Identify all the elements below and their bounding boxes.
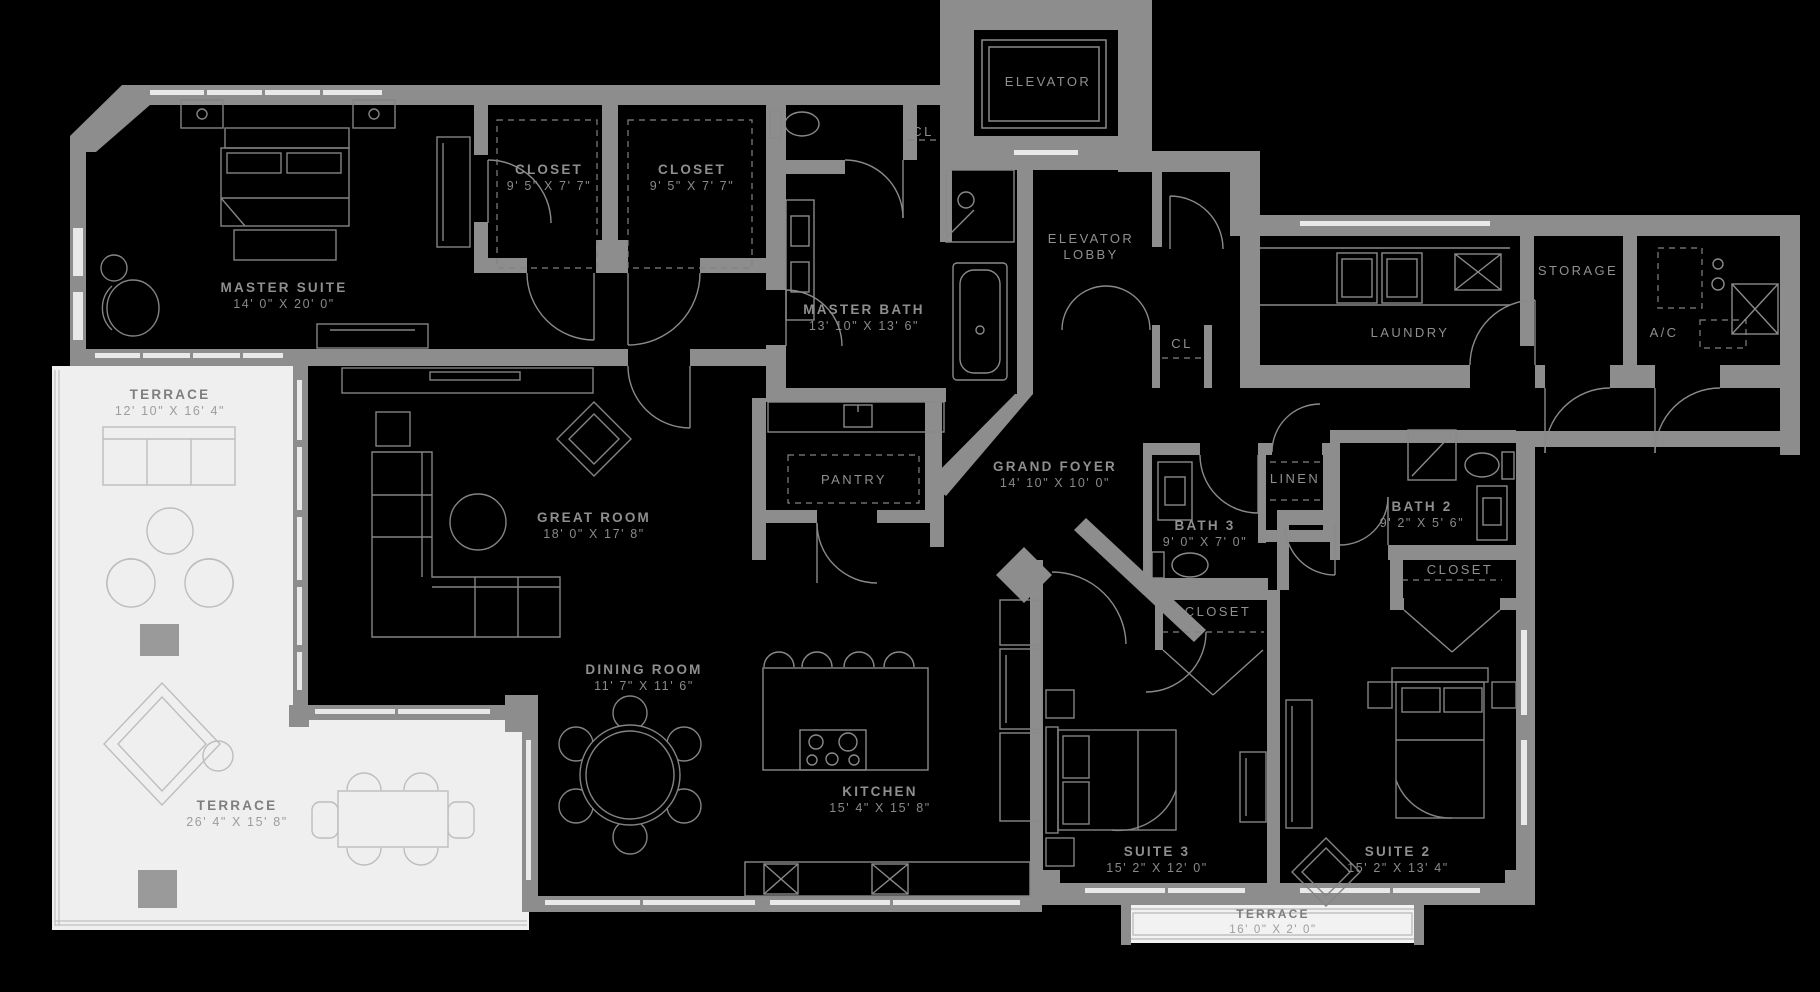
room-name: GRAND FOYER <box>993 459 1117 475</box>
room-name: LINEN <box>1270 471 1320 487</box>
room-name: SUITE 2 <box>1347 844 1449 860</box>
room-label-master-suite: MASTER SUITE 14' 0" X 20' 0" <box>221 280 348 312</box>
room-label-great-room: GREAT ROOM 18' 0" X 17' 8" <box>537 510 651 542</box>
room-label-linen: LINEN <box>1270 471 1320 487</box>
floor-plan: MASTER SUITE 14' 0" X 20' 0" CLOSET 9' 5… <box>0 0 1820 992</box>
room-name: TERRACE <box>115 387 225 403</box>
room-label-closet-suite2: CLOSET <box>1427 562 1493 578</box>
room-label-elevator: ELEVATOR <box>1005 74 1091 90</box>
room-name-line2: LOBBY <box>1048 247 1134 263</box>
room-name: KITCHEN <box>829 784 931 800</box>
floor-plan-drawing <box>0 0 1820 992</box>
room-label-dining-room: DINING ROOM 11' 7" X 11' 6" <box>585 662 702 694</box>
room-label-terrace-upper: TERRACE 12' 10" X 16' 4" <box>115 387 225 419</box>
room-label-pantry: PANTRY <box>821 472 887 488</box>
room-dims: 14' 10" X 10' 0" <box>993 475 1117 491</box>
room-name: CLOSET <box>1427 562 1493 578</box>
room-name: BATH 3 <box>1163 518 1247 534</box>
room-dims: 9' 2" X 5' 6" <box>1380 515 1464 531</box>
room-label-laundry: LAUNDRY <box>1371 325 1450 341</box>
room-label-suite-3: SUITE 3 15' 2" X 12' 0" <box>1106 844 1208 876</box>
room-label-suite-2: SUITE 2 15' 2" X 13' 4" <box>1347 844 1449 876</box>
room-name: ELEVATOR <box>1048 231 1134 247</box>
room-name: PANTRY <box>821 472 887 488</box>
room-name: LAUNDRY <box>1371 325 1450 341</box>
room-label-terrace-suites: TERRACE 16' 0" X 2' 0" <box>1229 906 1316 938</box>
room-label-bath-2: BATH 2 9' 2" X 5' 6" <box>1380 499 1464 531</box>
room-dims: 16' 0" X 2' 0" <box>1229 922 1316 938</box>
room-label-storage: STORAGE <box>1538 263 1618 279</box>
room-name: MASTER BATH <box>803 302 924 318</box>
room-label-kitchen: KITCHEN 15' 4" X 15' 8" <box>829 784 931 816</box>
room-name: BATH 2 <box>1380 499 1464 515</box>
room-name: CLOSET <box>507 162 591 178</box>
room-name: TERRACE <box>1229 906 1316 922</box>
room-dims: 26' 4" X 15' 8" <box>186 814 288 830</box>
room-label-terrace-main: TERRACE 26' 4" X 15' 8" <box>186 798 288 830</box>
room-dims: 18' 0" X 17' 8" <box>537 526 651 542</box>
room-dims: 9' 5" X 7' 7" <box>507 178 591 194</box>
room-label-closet-a: CLOSET 9' 5" X 7' 7" <box>507 162 591 194</box>
room-name: STORAGE <box>1538 263 1618 279</box>
room-dims: 14' 0" X 20' 0" <box>221 296 348 312</box>
room-dims: 15' 2" X 13' 4" <box>1347 860 1449 876</box>
room-name: SUITE 3 <box>1106 844 1208 860</box>
room-label-master-bath: MASTER BATH 13' 10" X 13' 6" <box>803 302 924 334</box>
room-name: MASTER SUITE <box>221 280 348 296</box>
room-dims: 9' 0" X 7' 0" <box>1163 534 1247 550</box>
room-label-cl-upper: CL <box>912 124 933 140</box>
room-label-ac: A/C <box>1650 325 1679 341</box>
room-name: TERRACE <box>186 798 288 814</box>
terrace-floors <box>52 366 1420 943</box>
room-label-cl-hall: CL <box>1171 336 1192 352</box>
room-name: CLOSET <box>1185 604 1251 620</box>
room-label-grand-foyer: GRAND FOYER 14' 10" X 10' 0" <box>993 459 1117 491</box>
room-name: CLOSET <box>650 162 734 178</box>
room-dims: 9' 5" X 7' 7" <box>650 178 734 194</box>
room-label-closet-suite3: CLOSET <box>1185 604 1251 620</box>
room-label-closet-b: CLOSET 9' 5" X 7' 7" <box>650 162 734 194</box>
room-dims: 11' 7" X 11' 6" <box>585 678 702 694</box>
room-name: CL <box>1171 336 1192 352</box>
room-name: ELEVATOR <box>1005 74 1091 90</box>
room-name: CL <box>912 124 933 140</box>
room-name: DINING ROOM <box>585 662 702 678</box>
room-name: A/C <box>1650 325 1679 341</box>
room-dims: 15' 4" X 15' 8" <box>829 800 931 816</box>
room-dims: 15' 2" X 12' 0" <box>1106 860 1208 876</box>
room-dims: 13' 10" X 13' 6" <box>803 318 924 334</box>
room-dims: 12' 10" X 16' 4" <box>115 403 225 419</box>
room-label-elevator-lobby: ELEVATOR LOBBY <box>1048 231 1134 263</box>
room-label-bath-3: BATH 3 9' 0" X 7' 0" <box>1163 518 1247 550</box>
room-name: GREAT ROOM <box>537 510 651 526</box>
